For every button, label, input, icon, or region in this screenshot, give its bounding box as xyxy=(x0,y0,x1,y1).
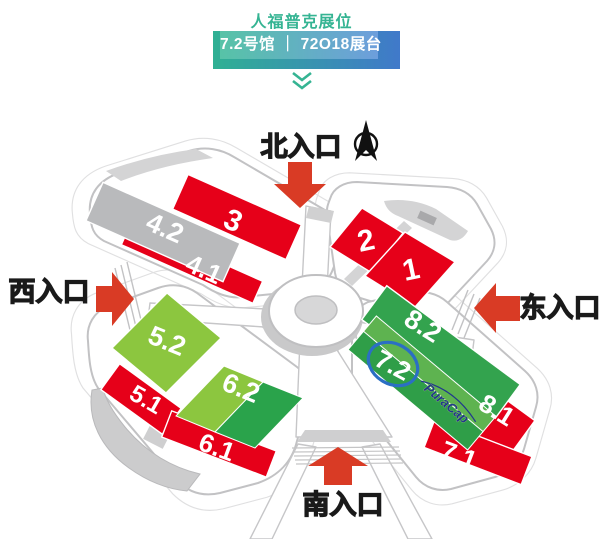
west-entrance-label: 西入口 xyxy=(9,277,90,307)
central-plaza-ring-hole xyxy=(295,296,337,324)
east-entrance-label: 东入口 xyxy=(520,292,601,323)
north-entrance-label: 北入口 xyxy=(261,132,342,162)
south-entrance-arrow-icon xyxy=(308,447,368,485)
south-plaza-ramp xyxy=(297,430,391,442)
south-entrance-label: 南入口 xyxy=(303,490,384,520)
east-entrance-arrow-icon xyxy=(474,283,520,333)
compass-north-icon xyxy=(355,120,377,161)
exhibition-venue-map: 3 4.2 4.1 2 1 5.2 6.2 5.1 6.1 8.2 7.2 8.… xyxy=(0,0,603,539)
